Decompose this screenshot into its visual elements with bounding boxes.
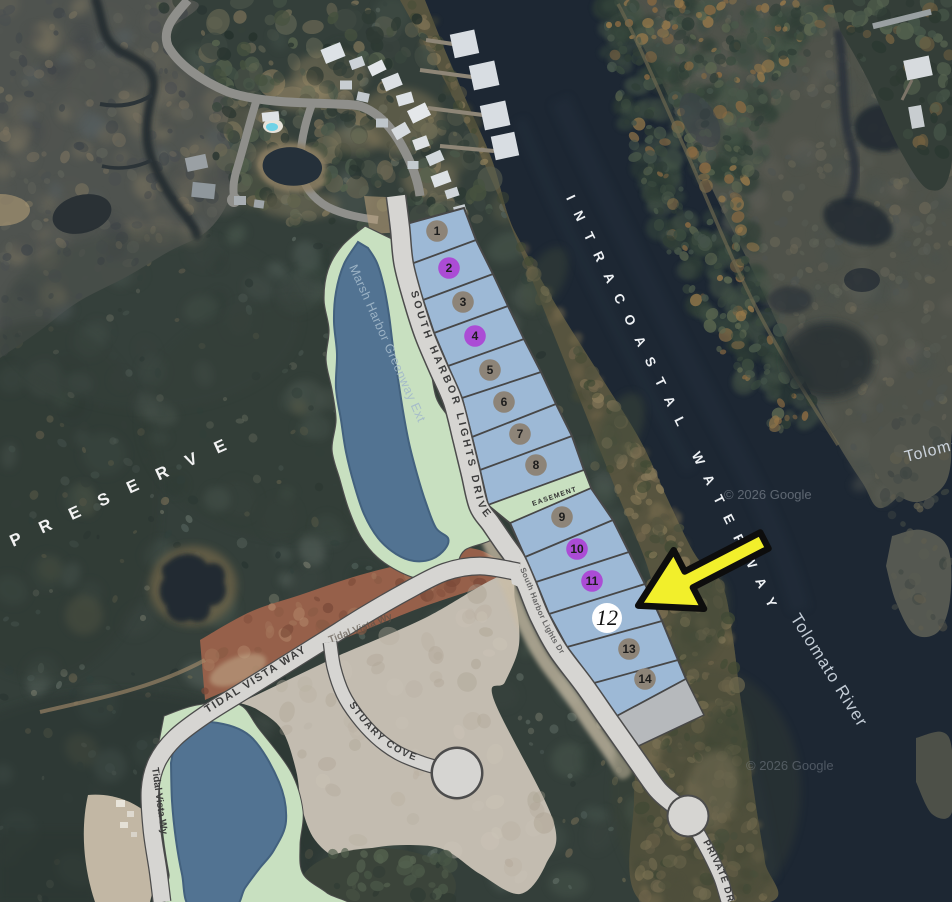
- svg-text:© 2026 Google: © 2026 Google: [746, 758, 834, 773]
- svg-text:© 2026 Google: © 2026 Google: [724, 487, 812, 502]
- svg-text:5: 5: [487, 363, 494, 377]
- svg-text:8: 8: [533, 458, 540, 472]
- svg-text:4: 4: [472, 329, 479, 343]
- svg-text:9: 9: [559, 510, 566, 524]
- svg-text:13: 13: [622, 642, 636, 656]
- svg-text:10: 10: [570, 542, 584, 556]
- svg-text:7: 7: [517, 427, 524, 441]
- svg-text:14: 14: [638, 672, 652, 686]
- svg-text:2: 2: [446, 261, 453, 275]
- svg-text:12: 12: [596, 605, 618, 630]
- svg-text:3: 3: [460, 295, 467, 309]
- svg-text:1: 1: [434, 224, 441, 238]
- svg-text:11: 11: [586, 574, 599, 588]
- svg-text:6: 6: [501, 395, 508, 409]
